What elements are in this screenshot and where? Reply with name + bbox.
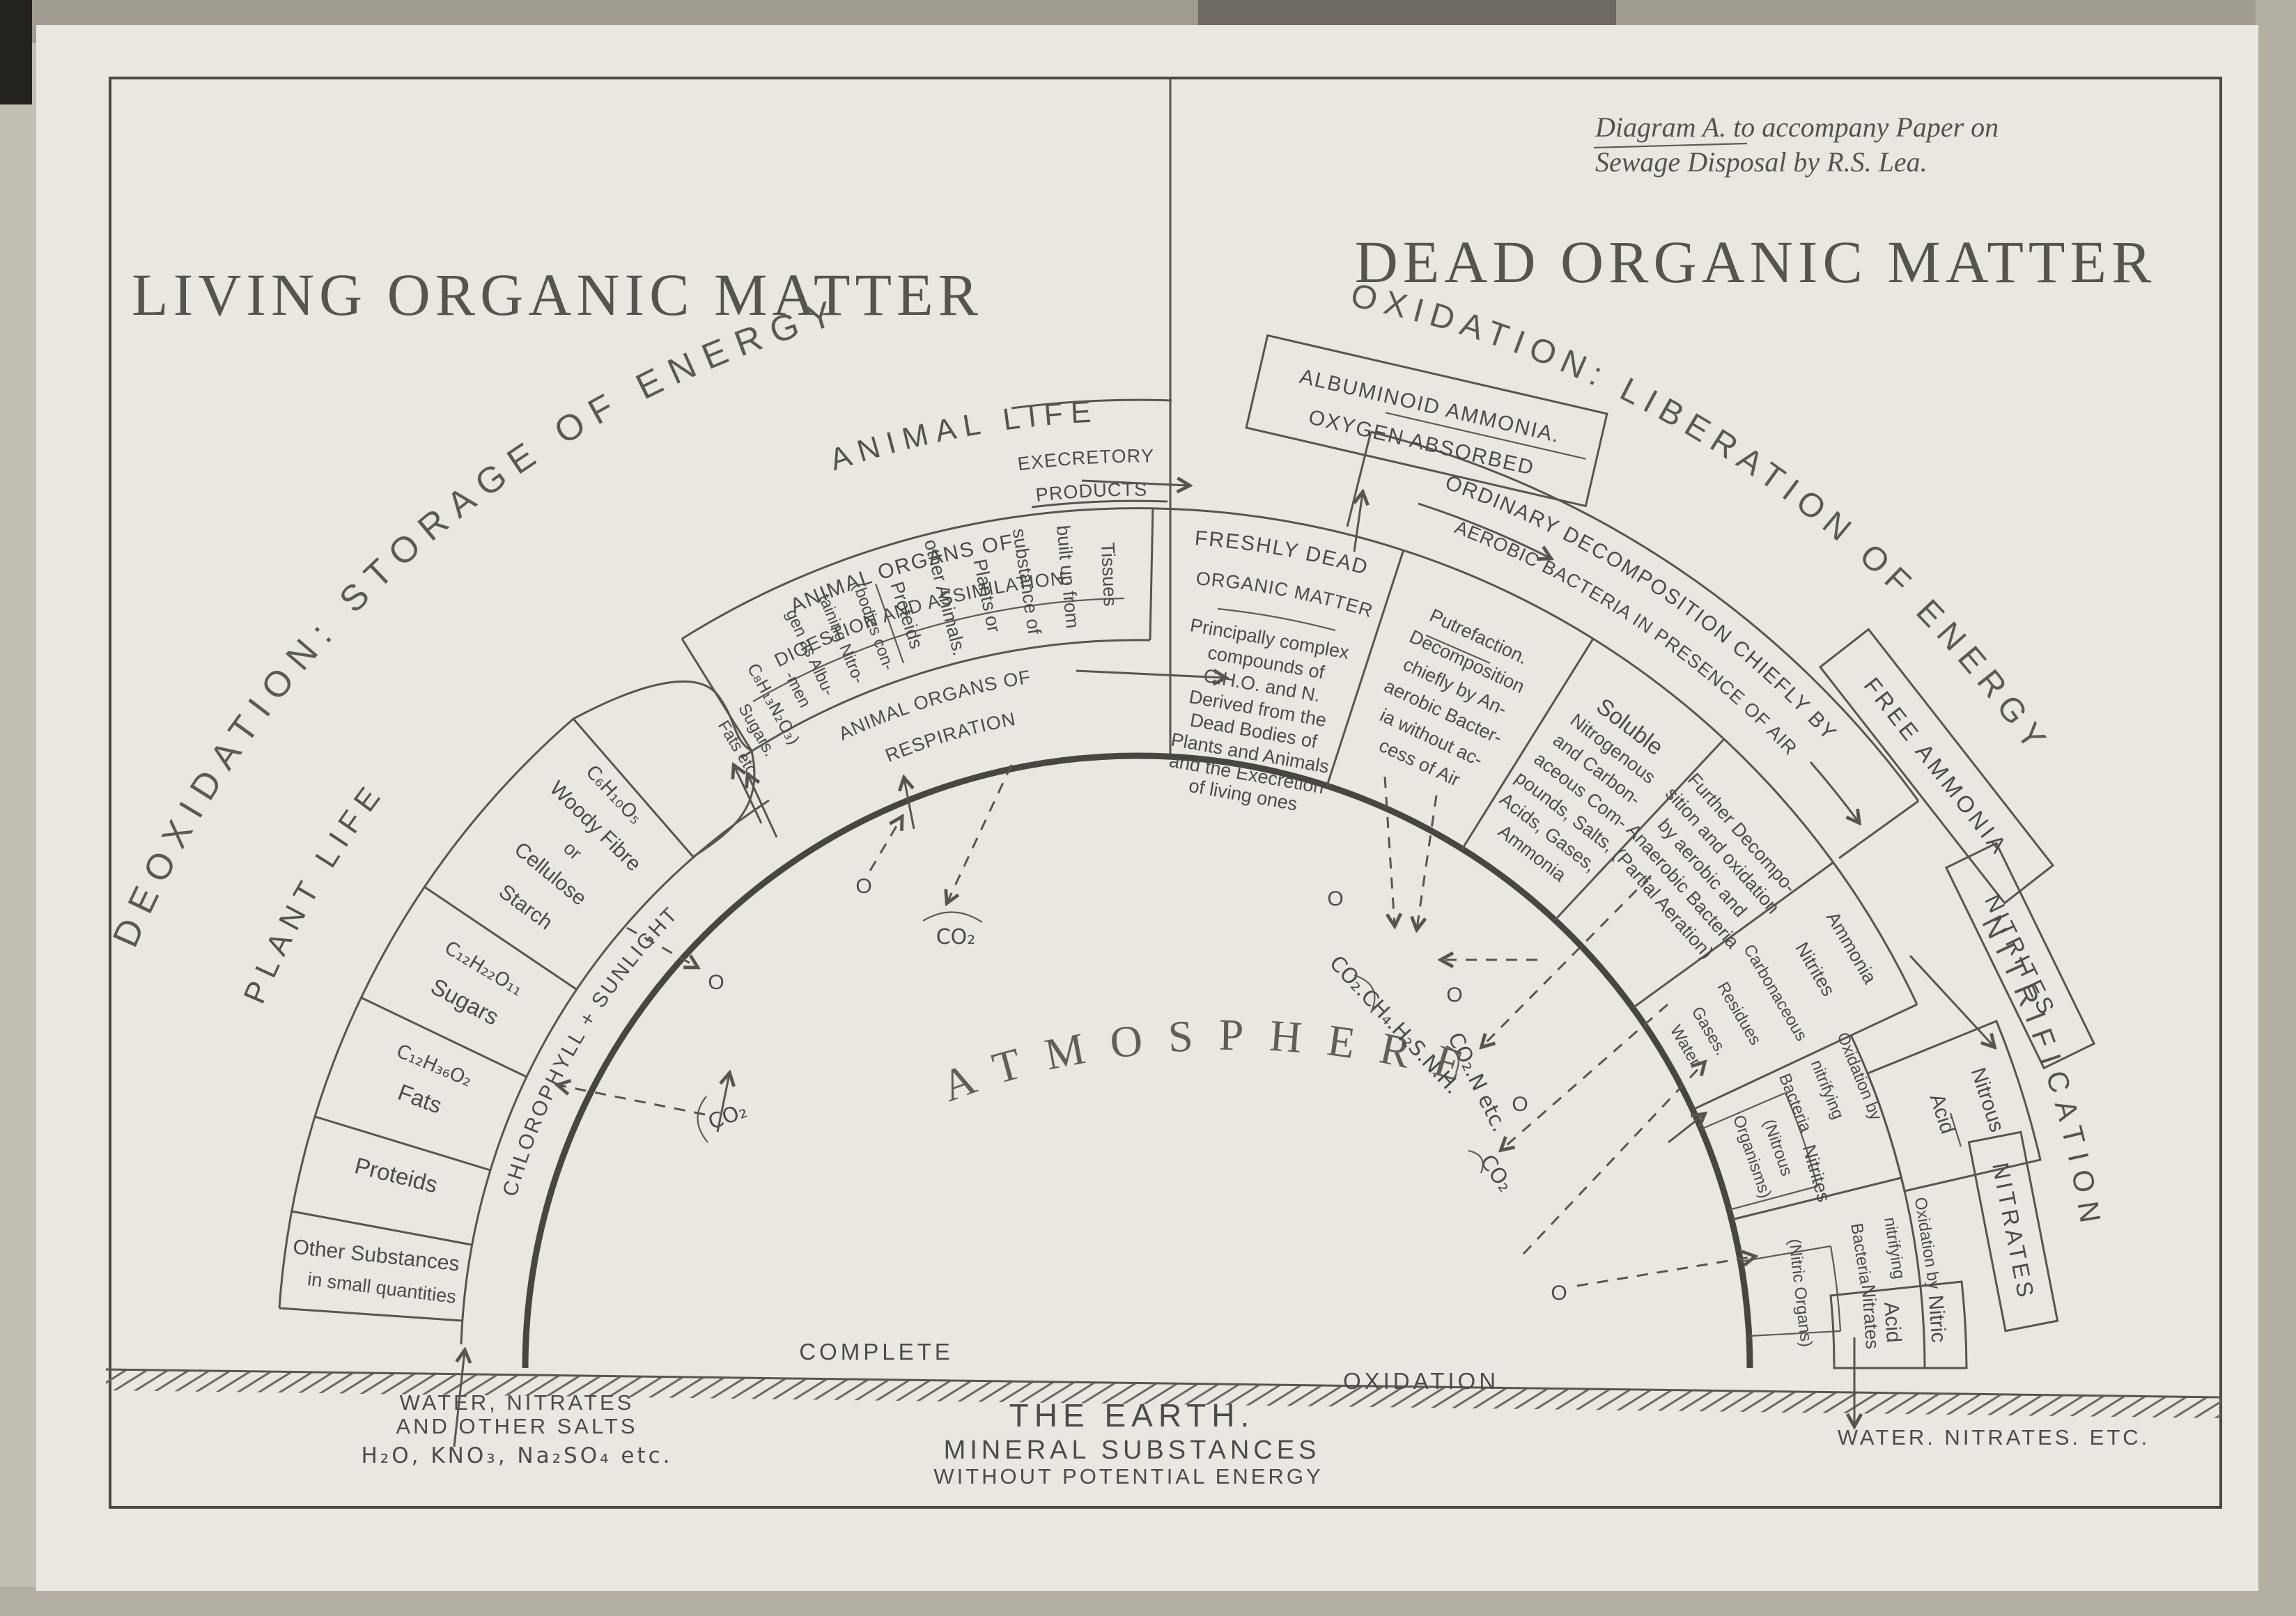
nitric-acid-line1: Nitric bbox=[1924, 1294, 1950, 1343]
scan-corner-tab bbox=[0, 0, 32, 104]
scan-right-edge bbox=[2256, 0, 2296, 1616]
left-salts-line1: WATER, NITRATES bbox=[400, 1390, 635, 1415]
caption-line1: Diagram A. to accompany Paper on bbox=[1595, 111, 1999, 143]
nitric-acid-line2: Acid bbox=[1879, 1301, 1905, 1344]
label-complete: COMPLETE bbox=[799, 1339, 954, 1365]
right-salts-label: WATER. NITRATES. ETC. bbox=[1838, 1425, 2150, 1450]
oxygen-label: O bbox=[855, 875, 871, 898]
co2-label: CO₂ bbox=[936, 925, 976, 949]
earth-title: THE EARTH. bbox=[1009, 1397, 1255, 1434]
oxygen-label: O bbox=[708, 971, 724, 994]
left-salts-formula: H₂O, KNO₃, Na₂SO₄ etc. bbox=[362, 1443, 673, 1468]
oxygen-label: O bbox=[1512, 1093, 1528, 1116]
title-living-organic-matter: LIVING ORGANIC MATTER bbox=[132, 261, 983, 328]
earth-subtitle: MINERAL SUBSTANCES bbox=[944, 1436, 1321, 1465]
left-salts-line2: AND OTHER SALTS bbox=[396, 1414, 637, 1438]
oxygen-label: O bbox=[1327, 887, 1343, 910]
caption-line2: Sewage Disposal by R.S. Lea. bbox=[1595, 146, 1927, 178]
title-dead-organic-matter: DEAD ORGANIC MATTER bbox=[1355, 228, 2157, 295]
oxygen-label: O bbox=[1551, 1282, 1567, 1305]
earth-subtitle2: WITHOUT POTENTIAL ENERGY bbox=[933, 1464, 1323, 1489]
oxygen-label: O bbox=[1446, 984, 1462, 1007]
digestion-line: Tissues bbox=[1097, 542, 1121, 607]
label-oxidation: OXIDATION bbox=[1343, 1368, 1499, 1394]
scanned-page: Diagram A. to accompany Paper on Sewage … bbox=[0, 0, 2296, 1616]
scan-bottom-edge bbox=[0, 1587, 2296, 1616]
